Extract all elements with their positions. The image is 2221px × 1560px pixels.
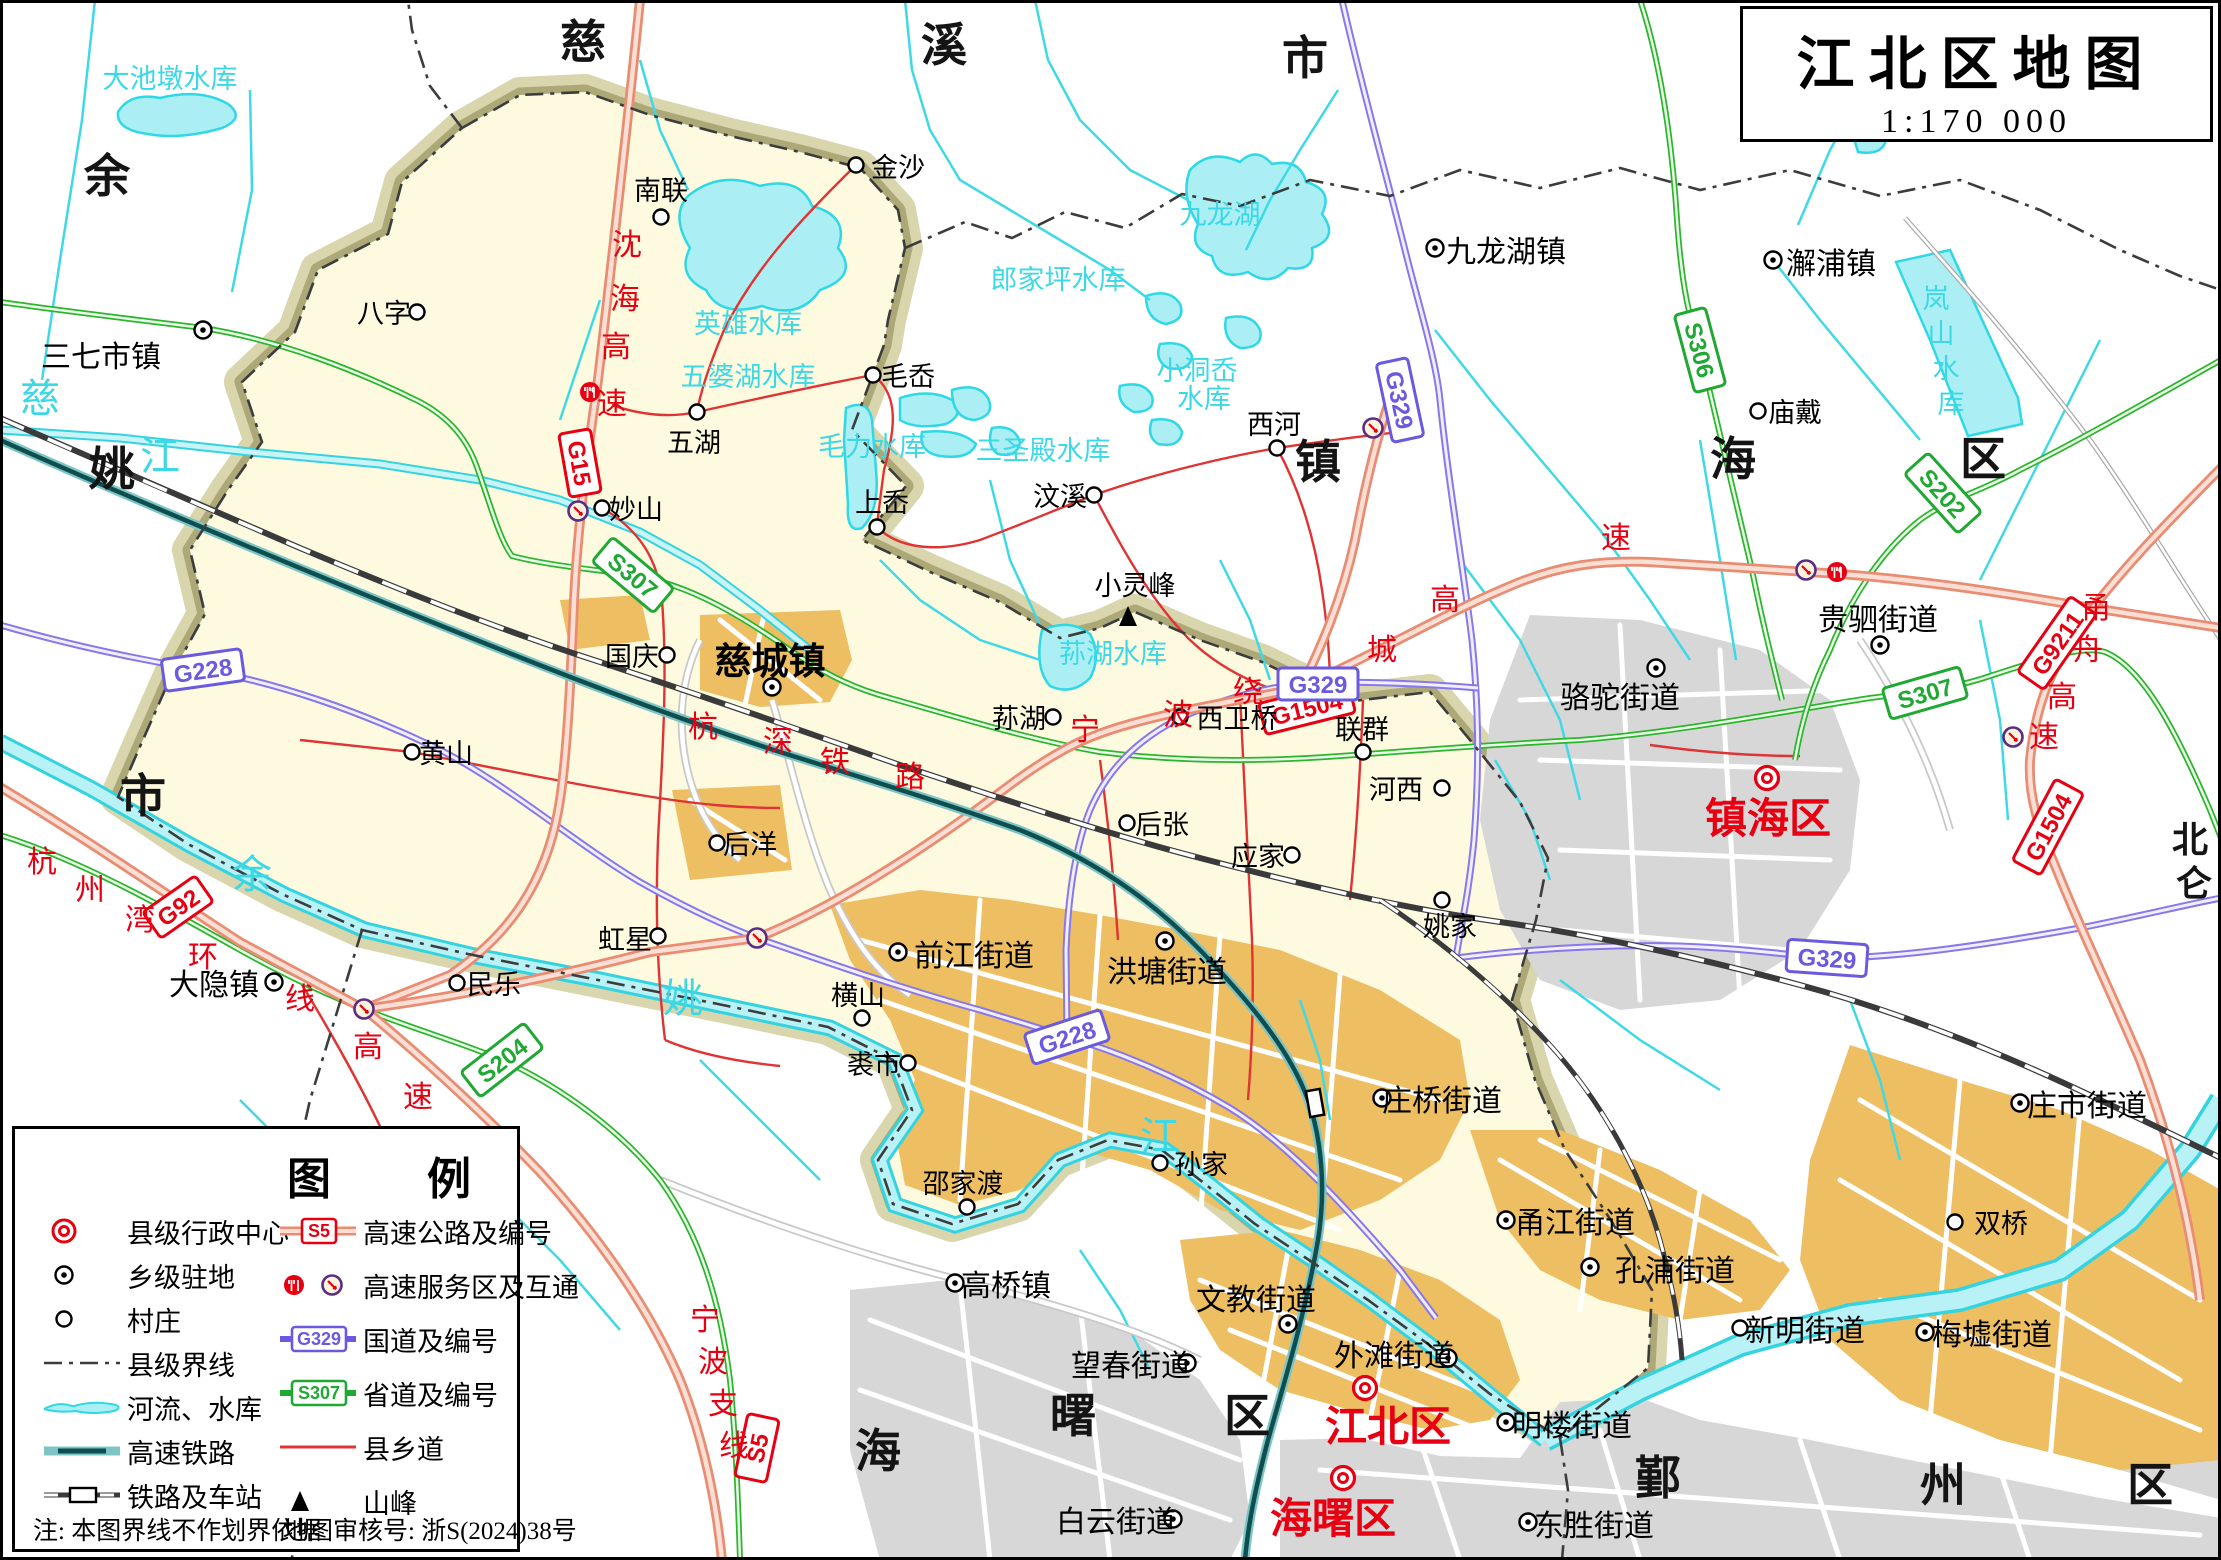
map-label: 南联 bbox=[634, 176, 688, 206]
map-label: 海 bbox=[855, 1426, 901, 1477]
legend-item-label: 河流、水库 bbox=[127, 1388, 287, 1427]
map-label: 水库 bbox=[1177, 384, 1231, 414]
river-reservoir-icon bbox=[41, 1393, 127, 1421]
map-label: 荪湖水库 bbox=[1059, 639, 1167, 669]
legend-item: S307省道及编号 bbox=[277, 1373, 563, 1413]
national-road-badge-icon: G329 bbox=[277, 1325, 363, 1353]
map-label: 铁 bbox=[820, 746, 850, 779]
legend-item: 村庄 bbox=[41, 1299, 287, 1339]
map-label: 慈 bbox=[20, 376, 60, 421]
map-label: 溪 bbox=[921, 20, 968, 71]
map-label: 波 bbox=[1163, 699, 1193, 732]
map-label: 州 bbox=[75, 874, 105, 907]
map-label: 杭 bbox=[688, 711, 718, 744]
town-seat-marker bbox=[1582, 1259, 1599, 1276]
svg-text:G329: G329 bbox=[297, 1329, 341, 1349]
map-label: 孙家 bbox=[1174, 1150, 1228, 1180]
map-label: 外滩街道 bbox=[1334, 1340, 1454, 1373]
map-label: 西卫桥 bbox=[1197, 704, 1278, 734]
interchange-icon bbox=[748, 929, 767, 948]
map-label: 八字 bbox=[357, 299, 411, 329]
map-label: 余 bbox=[232, 852, 272, 897]
map-label: 毛力水库 bbox=[818, 432, 926, 462]
map-label: 邵家渡 bbox=[923, 1169, 1004, 1199]
map-label: 余 bbox=[83, 151, 131, 202]
village-marker bbox=[960, 1200, 975, 1215]
map-label: 区 bbox=[1224, 1391, 1270, 1442]
legend-item-label: 县乡道 bbox=[363, 1428, 563, 1467]
map-label: 庄桥街道 bbox=[1382, 1085, 1502, 1118]
legend-item: G329国道及编号 bbox=[277, 1319, 563, 1359]
map-label: 联群 bbox=[1335, 715, 1389, 745]
legend-item-label: 村庄 bbox=[127, 1300, 287, 1339]
legend-item-label: 县级界线 bbox=[127, 1344, 287, 1383]
svg-text:G329: G329 bbox=[1289, 672, 1348, 699]
service-interchange-icon bbox=[277, 1271, 363, 1299]
map-label: 英雄水库 bbox=[694, 309, 802, 339]
map-label: 荪湖 bbox=[992, 704, 1046, 734]
legend: 图 例 县级行政中心乡级驻地村庄县级界线河流、水库高速铁路铁路及车站S5高速公路… bbox=[12, 1126, 520, 1552]
county-center-marker bbox=[1354, 1377, 1377, 1400]
map-label: 宁 bbox=[1070, 714, 1100, 747]
map-label: 慈 bbox=[560, 17, 606, 68]
map-label: 小洞岙 bbox=[1157, 356, 1238, 386]
map-label: 毛岙 bbox=[881, 362, 935, 392]
town-seat-marker bbox=[890, 944, 907, 961]
map-label: 区 bbox=[1960, 434, 2006, 485]
road-badge-G329: G329 bbox=[1786, 939, 1868, 977]
interchange-icon bbox=[569, 502, 588, 521]
map-label: 九龙湖 bbox=[1180, 200, 1261, 230]
map-label: 深 bbox=[763, 726, 793, 759]
hsr-icon bbox=[41, 1437, 127, 1465]
village-marker bbox=[690, 405, 705, 420]
map-label: 速 bbox=[2029, 721, 2059, 754]
map-label: 大池墩水库 bbox=[103, 64, 238, 94]
map-label: 双桥 bbox=[1974, 1209, 2028, 1239]
map-label: 杭 bbox=[27, 846, 57, 879]
legend-item-label: 乡级驻地 bbox=[127, 1256, 287, 1295]
map-label: 后洋 bbox=[723, 830, 777, 860]
map-label: 庄市街道 bbox=[2027, 1090, 2147, 1123]
legend-item: 高速服务区及互通 bbox=[277, 1265, 563, 1305]
map-label: 州 bbox=[1920, 1460, 1966, 1511]
county-boundary-icon bbox=[41, 1349, 127, 1377]
village-marker bbox=[651, 929, 666, 944]
village-marker bbox=[1046, 710, 1061, 725]
village-marker bbox=[855, 1011, 870, 1026]
village-marker bbox=[1435, 781, 1450, 796]
town-seat-icon bbox=[41, 1261, 127, 1289]
county-center-icon bbox=[41, 1217, 127, 1245]
map-label: 应家 bbox=[1231, 842, 1285, 872]
map-label: 海 bbox=[610, 283, 640, 316]
map-label: 城 bbox=[1367, 634, 1397, 667]
service-area-icon bbox=[1827, 562, 1847, 582]
village-marker bbox=[660, 648, 675, 663]
map-label: 汶溪 bbox=[1033, 482, 1087, 512]
map-label: 郎家坪水库 bbox=[991, 265, 1126, 295]
map-label: 高桥镇 bbox=[961, 1270, 1051, 1303]
map-label: 速 bbox=[403, 1081, 433, 1114]
map-label: 上岙 bbox=[855, 488, 909, 518]
village-icon bbox=[41, 1305, 127, 1333]
map-label: 大隐镇 bbox=[169, 969, 259, 1002]
town-seat-marker bbox=[195, 322, 212, 339]
map-label: 水 bbox=[1933, 354, 1960, 384]
svg-text:S307: S307 bbox=[298, 1383, 340, 1403]
town-seat-marker bbox=[2012, 1095, 2029, 1112]
map-label: 五湖 bbox=[667, 428, 721, 458]
map-label: 白云街道 bbox=[1056, 1506, 1176, 1539]
town-seat-marker bbox=[1648, 660, 1665, 677]
map-label: 姚 bbox=[663, 976, 703, 1021]
village-marker bbox=[1751, 404, 1766, 419]
map-label: 宁 bbox=[690, 1304, 720, 1337]
road-badge-S204: S204 bbox=[461, 1023, 544, 1097]
map-label: 海 bbox=[1710, 434, 1756, 485]
map-label: 三七市镇 bbox=[41, 341, 161, 374]
legend-item: 乡级驻地 bbox=[41, 1255, 287, 1295]
railway-station-marker bbox=[1306, 1089, 1324, 1117]
map-label: 线 bbox=[285, 983, 315, 1016]
legend-item-label: 省道及编号 bbox=[363, 1374, 563, 1413]
map-label: 澥浦镇 bbox=[1786, 248, 1876, 281]
legend-item-label: 高速服务区及互通 bbox=[363, 1266, 563, 1305]
map-label: 庙戴 bbox=[1768, 398, 1822, 428]
legend-item: 县级界线 bbox=[41, 1343, 287, 1383]
legend-item: 县级行政中心 bbox=[41, 1211, 287, 1251]
map-label: 库 bbox=[1938, 389, 1965, 419]
town-seat-marker bbox=[1765, 252, 1782, 269]
map-label: 高 bbox=[353, 1031, 383, 1064]
interchange-icon bbox=[355, 1000, 374, 1019]
map-label: 曙 bbox=[1050, 1391, 1096, 1442]
provincial-road-badge-icon: S307 bbox=[277, 1379, 363, 1407]
map-label: 鄞 bbox=[1635, 1453, 1681, 1504]
town-seat-marker bbox=[1498, 1212, 1515, 1229]
map-label: 姚 bbox=[88, 444, 135, 495]
map-label: 虹星 bbox=[598, 925, 652, 955]
map-label: 姚家 bbox=[1423, 912, 1477, 942]
map-label: 北 bbox=[2172, 820, 2208, 860]
town-seat-marker bbox=[1157, 933, 1174, 950]
legend-header-right: 例 bbox=[427, 1143, 471, 1207]
village-marker bbox=[1285, 848, 1300, 863]
village-marker bbox=[405, 745, 420, 760]
legend-item-label: 高速铁路 bbox=[127, 1432, 287, 1471]
legend-item: 河流、水库 bbox=[41, 1387, 287, 1427]
map-label: 金沙 bbox=[871, 153, 925, 183]
road-badge-S306: S306 bbox=[1674, 307, 1726, 393]
map-label: 速 bbox=[1601, 522, 1631, 555]
legend-item-label: 铁路及车站 bbox=[127, 1476, 287, 1515]
town-seat-marker bbox=[1280, 1316, 1297, 1333]
map-label: 西河 bbox=[1247, 410, 1301, 440]
map-label: 民乐 bbox=[467, 970, 521, 1000]
map-title: 江北区地图 bbox=[1743, 17, 2210, 101]
map-label: 速 bbox=[597, 388, 627, 421]
map-label: 裘市 bbox=[847, 1050, 901, 1080]
map-label: 国庆 bbox=[605, 642, 659, 672]
map-title-box: 江北区地图 1:170 000 bbox=[1740, 6, 2213, 142]
map-label: 明楼街道 bbox=[1512, 1410, 1632, 1443]
map-label: 九龙湖镇 bbox=[1446, 236, 1566, 269]
map-label: 波 bbox=[698, 1346, 728, 1379]
map-label: 高 bbox=[601, 331, 631, 364]
map-label: 望春街道 bbox=[1071, 1350, 1191, 1383]
expressway-badge-icon: S5 bbox=[277, 1217, 363, 1245]
map-label: 舟 bbox=[2073, 634, 2103, 667]
map-label: 黄山 bbox=[419, 739, 473, 769]
map-label: 支 bbox=[708, 1388, 738, 1421]
legend-item-label: 县级行政中心 bbox=[127, 1212, 287, 1251]
village-marker bbox=[450, 976, 465, 991]
map-label: 贵驷街道 bbox=[1818, 604, 1938, 637]
map-label: 仑 bbox=[2176, 864, 2212, 904]
map-scale: 1:170 000 bbox=[1743, 103, 2210, 141]
map-label: 小灵峰 bbox=[1095, 571, 1176, 601]
map-label: 河西 bbox=[1369, 775, 1423, 805]
map-label: 湾 bbox=[125, 904, 155, 937]
legend-header-left: 图 bbox=[287, 1143, 331, 1207]
map-label: 五婆湖水库 bbox=[681, 362, 816, 392]
county-center-marker bbox=[1756, 767, 1779, 790]
map-label: 市 bbox=[120, 771, 166, 822]
interchange-icon bbox=[1797, 561, 1816, 580]
svg-text:G329: G329 bbox=[1797, 944, 1857, 975]
map-label: 江 bbox=[140, 434, 180, 479]
village-marker bbox=[1948, 1215, 1963, 1230]
road-badge-G1504: G1504 bbox=[2012, 779, 2083, 875]
village-marker bbox=[410, 305, 425, 320]
village-marker bbox=[1356, 745, 1371, 760]
map-label: 孔浦街道 bbox=[1615, 1255, 1735, 1288]
map-label: 市 bbox=[1282, 33, 1328, 84]
village-marker bbox=[1087, 488, 1102, 503]
map-label: 镇 bbox=[1295, 437, 1341, 488]
map-label: 新明街道 bbox=[1745, 1315, 1865, 1348]
map-label: 文教街道 bbox=[1196, 1284, 1316, 1317]
village-marker bbox=[901, 1056, 916, 1071]
village-marker bbox=[654, 210, 669, 225]
county-road-icon bbox=[277, 1433, 363, 1461]
road-badge-S307: S307 bbox=[1882, 667, 1968, 720]
map-label: 骆驼街道 bbox=[1560, 682, 1680, 715]
map-label: 高 bbox=[1430, 584, 1460, 617]
legend-item-label: 高速公路及编号 bbox=[363, 1212, 563, 1251]
map-label: 镇海区 bbox=[1705, 796, 1831, 843]
interchange-icon bbox=[2004, 728, 2023, 747]
village-marker bbox=[870, 520, 885, 535]
map-label: 东胜街道 bbox=[1534, 1510, 1654, 1543]
village-marker bbox=[595, 501, 610, 516]
map-label: 岚 bbox=[1923, 284, 1950, 314]
map-label: 区 bbox=[2127, 1460, 2173, 1511]
legend-note: 注: 本图界线不作划界依据 bbox=[33, 1511, 321, 1547]
town-seat-marker bbox=[1872, 637, 1889, 654]
legend-item-label: 国道及编号 bbox=[363, 1320, 563, 1359]
town-seat-marker bbox=[1427, 240, 1444, 257]
legend-item: 县乡道 bbox=[277, 1427, 563, 1467]
map-label: 梅墟街道 bbox=[1932, 1319, 2052, 1352]
village-marker bbox=[1120, 816, 1135, 831]
legend-item: 高速铁路 bbox=[41, 1431, 287, 1471]
map-label: 路 bbox=[895, 761, 925, 794]
village-marker bbox=[866, 368, 881, 383]
legend-item: S5高速公路及编号 bbox=[277, 1211, 563, 1251]
map-label: 妙山 bbox=[609, 495, 663, 525]
svg-text:S5: S5 bbox=[308, 1221, 330, 1241]
legend-item: 铁路及车站 bbox=[41, 1475, 287, 1515]
map-label: 甬 bbox=[2081, 592, 2111, 625]
map-label: 线 bbox=[719, 1430, 749, 1463]
village-marker bbox=[1435, 893, 1450, 908]
map-label: 前江街道 bbox=[914, 940, 1034, 973]
village-marker bbox=[1270, 441, 1285, 456]
county-center-marker bbox=[1332, 1467, 1355, 1490]
legend-review-number: 地图审核号: 浙S(2024)38号 bbox=[283, 1511, 577, 1547]
map-label: 江北区 bbox=[1325, 1404, 1451, 1451]
map-label: 山 bbox=[1928, 319, 1955, 349]
jiangbei-district-map[interactable]: G15G92G1504G1504G9211S5G228G228G329G329G… bbox=[0, 0, 2221, 1560]
railway-station-icon bbox=[41, 1481, 127, 1509]
map-label: 沈 bbox=[612, 229, 642, 262]
road-badge-G329: G329 bbox=[1278, 668, 1358, 700]
interchange-icon bbox=[1364, 419, 1383, 438]
map-label: 慈城镇 bbox=[715, 641, 826, 683]
map-label: 后张 bbox=[1135, 810, 1189, 840]
town-seat-marker bbox=[1917, 1324, 1934, 1341]
map-label: 高 bbox=[2047, 681, 2077, 714]
village-marker bbox=[849, 158, 864, 173]
map-label: 横山 bbox=[831, 981, 885, 1011]
map-label: 海曙区 bbox=[1270, 1496, 1396, 1543]
town-seat-marker bbox=[266, 974, 283, 991]
map-label: 甬江街道 bbox=[1515, 1207, 1635, 1240]
map-label: 三圣殿水库 bbox=[976, 436, 1111, 466]
map-label: 洪塘街道 bbox=[1107, 956, 1227, 989]
